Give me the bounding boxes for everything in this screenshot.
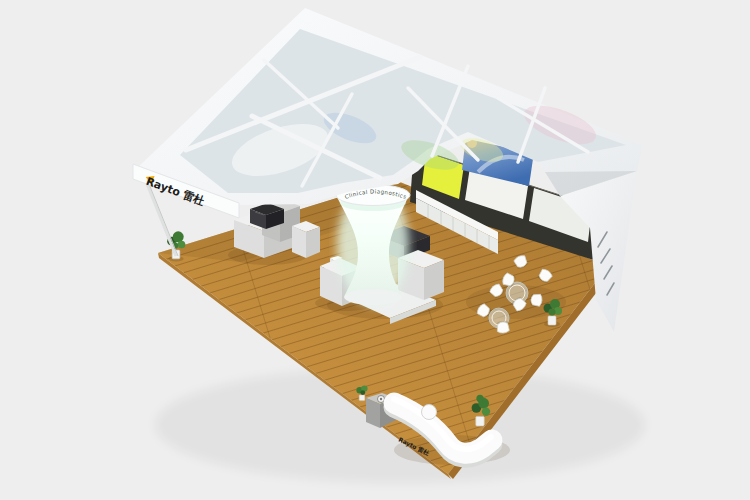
seating-chair <box>496 320 509 333</box>
booth-render: Clinical Diagnostics <box>0 0 750 500</box>
counter-round-end <box>422 405 437 420</box>
seating-chair <box>529 293 542 306</box>
display-pedestal <box>292 221 320 258</box>
render-viewport: Clinical Diagnostics <box>0 0 750 500</box>
